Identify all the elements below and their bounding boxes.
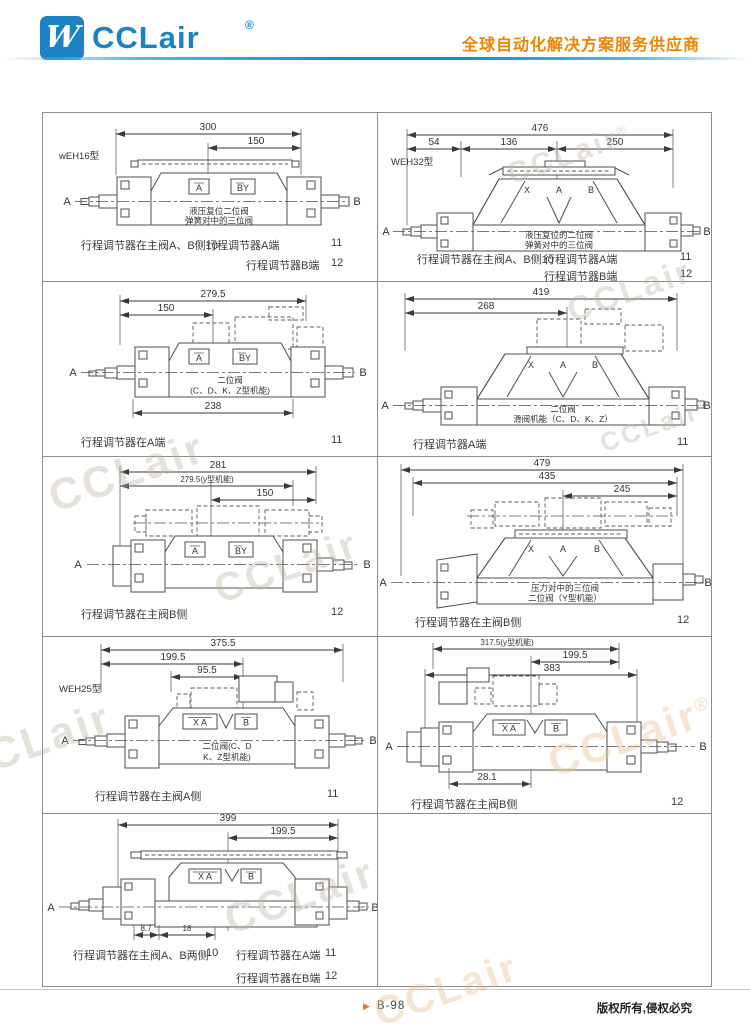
port-label: B	[553, 724, 559, 734]
port-label: A	[196, 353, 202, 363]
logo-w-icon: W	[43, 23, 81, 53]
end-label-b: B	[353, 196, 360, 208]
dim-label: 150	[257, 488, 274, 499]
end-label-a: A	[69, 367, 77, 379]
caption-number: 10	[206, 947, 218, 959]
port-label: A	[192, 546, 198, 556]
caption: 行程调节器在主阀B侧	[411, 796, 517, 812]
panel-y-type: 317.5(y型机能) 199.5 383 X A B	[377, 636, 711, 813]
dim-label: 199.5	[270, 826, 295, 837]
dim-label: 28.1	[477, 772, 497, 783]
caption: 行程调节器在A端	[81, 434, 165, 450]
end-label-a: A	[381, 400, 389, 412]
caption: 行程调节器在B端	[236, 970, 320, 986]
registered-mark: ®	[245, 18, 254, 32]
dim-label: 479	[534, 458, 551, 469]
brand-logo: W	[40, 16, 84, 60]
caption-number: 12	[331, 606, 343, 618]
note-line: 二位阀(C、D	[202, 741, 251, 751]
caption: 行程调节器在主阀A、B侧10	[81, 237, 218, 253]
end-label-a: A	[382, 226, 390, 238]
caption-number: 11	[331, 434, 342, 446]
port-label: BY	[239, 353, 251, 363]
dim-label: 279.5(y型机能)	[180, 474, 234, 484]
port-label: B	[243, 718, 249, 728]
caption: 行程调节器B端	[246, 257, 319, 273]
dim-label: 245	[614, 484, 631, 495]
note-line: K、Z型机能)	[203, 752, 251, 762]
panel-stroke-adjuster-b-main: 281 279.5(y型机能) 150 A BY	[43, 456, 377, 636]
caption: 行程调节器在A端	[236, 947, 320, 963]
panel-weh25: 375.5 199.5 95.5 WEH25型 X A B	[43, 636, 377, 813]
valve-diagram: 479 435 245 X A B	[377, 456, 711, 636]
dim-label: 8.7	[140, 924, 152, 933]
end-label-b: B	[704, 577, 711, 589]
end-label-a: A	[379, 577, 387, 589]
dim-label: 136	[501, 137, 518, 148]
port-label: B	[588, 185, 594, 195]
dim-label: 250	[607, 137, 624, 148]
end-label-b: B	[703, 400, 710, 412]
dim-label: 150	[158, 303, 175, 314]
caption: 行程调节器在主阀A侧	[95, 788, 201, 804]
dim-label: 476	[532, 123, 549, 134]
caption-number: 11	[677, 436, 688, 448]
port-label: BY	[237, 183, 249, 193]
model-label: WEH32型	[391, 157, 434, 168]
catalog-page: W CCLair ® 全球自动化解决方案服务供应商 300 150 wEH16型	[0, 0, 750, 1035]
panel-pressure-centered: 479 435 245 X A B	[377, 456, 711, 636]
end-label-a: A	[47, 902, 55, 914]
dim-label: 18	[183, 924, 192, 933]
dim-label: 383	[544, 663, 561, 674]
end-label-b: B	[369, 735, 376, 747]
panel-both-sides: 399 199.5 X A B A B	[43, 813, 377, 986]
valve-diagram-weh25: 375.5 199.5 95.5 WEH25型 X A B	[43, 636, 377, 813]
footer-divider	[0, 989, 750, 990]
dim-label: 150	[248, 136, 265, 147]
caption: 行程调节器在主阀A、B侧10	[417, 251, 554, 267]
port-label: X A	[193, 718, 207, 728]
caption: 行程调节器在主阀A、B两侧	[73, 947, 209, 963]
model-label: WEH25型	[59, 684, 102, 695]
dim-label: 419	[533, 287, 550, 298]
end-label-a: A	[61, 735, 69, 747]
port-label: X A	[198, 872, 212, 882]
dim-label: 238	[205, 401, 222, 412]
caption-number: 12	[331, 257, 343, 269]
caption-number: 11	[331, 237, 342, 249]
port-label: A	[556, 185, 562, 195]
dim-label: 375.5	[210, 638, 235, 649]
note-line: 二位阀	[217, 375, 243, 385]
diagram-grid: 300 150 wEH16型 A BY A B 液压复位二位阀	[42, 112, 712, 987]
dim-label: 199.5	[562, 650, 587, 661]
end-label-b: B	[359, 367, 366, 379]
port-label: A	[560, 544, 566, 554]
dim-label: 300	[200, 122, 217, 133]
port-label: X	[528, 544, 534, 554]
port-label: B	[592, 360, 598, 370]
valve-diagram: 279.5 150 A BY A B 二位阀	[43, 281, 377, 456]
port-label: X	[528, 360, 534, 370]
note-line: 弹簧对中的三位阀	[185, 216, 253, 226]
end-label-a: A	[385, 741, 393, 753]
caption: 行程调节器A端	[413, 436, 486, 452]
panel-two-position-b: 419 268 X A B A B	[377, 281, 711, 456]
valve-diagram: 317.5(y型机能) 199.5 383 X A B	[377, 636, 711, 813]
port-label: BY	[235, 546, 247, 556]
dim-label: 317.5(y型机能)	[480, 637, 534, 647]
caption-number: 12	[677, 614, 689, 626]
caption: 行程调节器在主阀B侧	[415, 614, 521, 630]
copyright-text: 版权所有,侵权必究	[597, 1000, 692, 1016]
model-label: wEH16型	[58, 151, 100, 162]
caption: 行程调节器A端	[206, 237, 279, 253]
dim-label: 399	[220, 813, 237, 824]
dim-label: 54	[428, 137, 440, 148]
dim-label: 435	[539, 471, 556, 482]
dim-label: 199.5	[160, 652, 185, 663]
page-marker-icon: ▶	[363, 1001, 371, 1011]
panel-weh32: 476 54 136 250 WEH32型 X A B	[377, 113, 711, 281]
port-label: A	[560, 360, 566, 370]
panel-two-position-a: 279.5 150 A BY A B 二位阀	[43, 281, 377, 456]
note-line: 二位阀（Y型机能）	[528, 593, 602, 603]
header-tagline: 全球自动化解决方案服务供应商	[462, 31, 700, 55]
caption-number: 12	[680, 268, 692, 280]
header-divider	[0, 57, 750, 60]
note-line: 二位阀	[550, 404, 576, 414]
caption-number: 11	[325, 947, 336, 959]
caption-number: 12	[671, 796, 683, 808]
port-label: A	[196, 183, 202, 193]
valve-diagram-weh16: 300 150 wEH16型 A BY A B 液压复位二位阀	[43, 113, 377, 281]
dim-label: 268	[478, 301, 495, 312]
note-line: 弹簧对中的三位阀	[525, 240, 593, 250]
end-label-a: A	[74, 559, 82, 571]
caption-number: 12	[325, 970, 337, 982]
note-line: 压力对中的三位阀	[531, 583, 599, 593]
valve-diagram: 419 268 X A B A B	[377, 281, 711, 456]
port-label: B	[248, 872, 254, 882]
note-line: (C、D、K、Z型机能)	[190, 386, 270, 396]
panel-weh16: 300 150 wEH16型 A BY A B 液压复位二位阀	[43, 113, 377, 281]
dim-label: 95.5	[197, 665, 217, 676]
dim-label: 279.5	[200, 289, 225, 300]
end-label-b: B	[699, 741, 706, 753]
note-line: 液压复位二位阀	[189, 206, 249, 216]
port-label: X A	[502, 724, 516, 734]
caption: 行程调节器在主阀B侧	[81, 606, 187, 622]
end-label-b: B	[703, 226, 710, 238]
caption-number: 11	[680, 251, 691, 263]
page-number: ▶B-98	[363, 1000, 405, 1012]
brand-text: CCLair	[92, 20, 200, 56]
dim-label: 281	[210, 460, 227, 471]
end-label-b: B	[363, 559, 370, 571]
end-label-a: A	[63, 196, 71, 208]
note-line: 滑阀机能（C、D、K、Z）	[513, 414, 613, 424]
port-label: B	[594, 544, 600, 554]
caption-number: 11	[327, 788, 338, 800]
empty-cell	[377, 813, 711, 986]
note-line: 液压复位的二位阀	[525, 230, 593, 240]
port-label: X	[524, 185, 530, 195]
caption: 行程调节器A端	[544, 251, 617, 267]
